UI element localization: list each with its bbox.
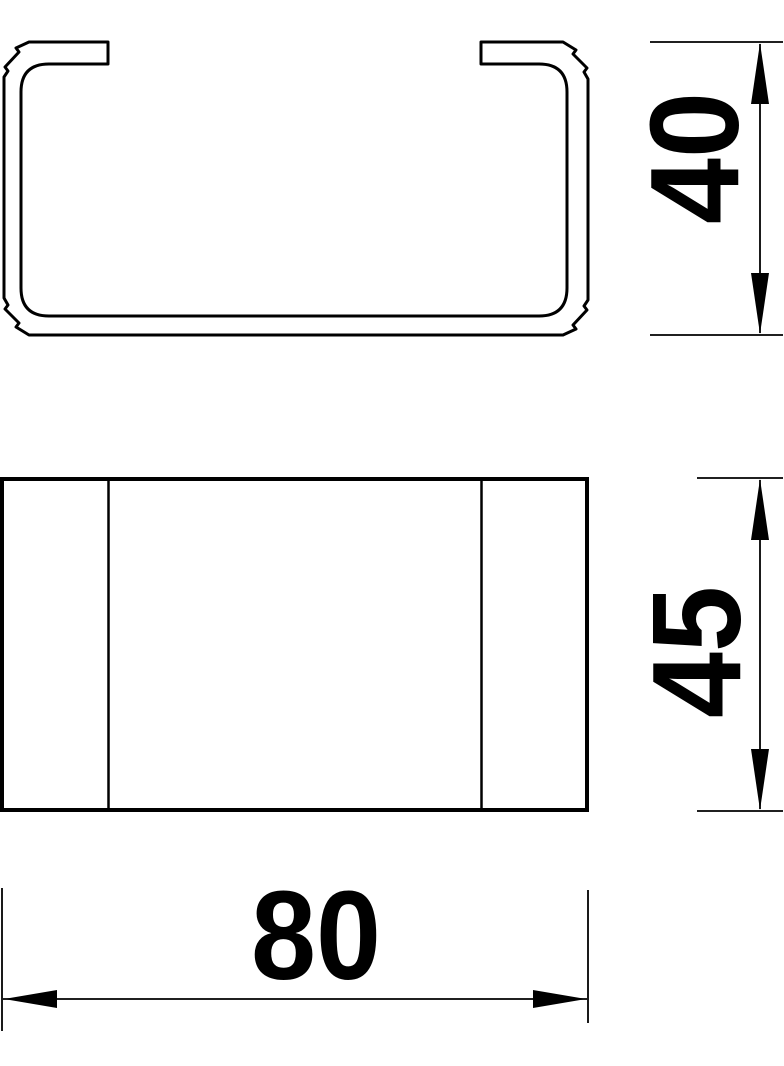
arrowhead-down-icon: [751, 273, 769, 334]
c-profile-outline: [4, 42, 588, 335]
dimension-height-40: 40: [624, 42, 783, 335]
arrowhead-down-icon: [751, 749, 769, 810]
front-view-c-profile: [4, 42, 588, 335]
technical-drawing-canvas: 40 45 80: [0, 0, 784, 1066]
top-view: [2, 479, 587, 810]
dimension-depth-45: 45: [626, 478, 783, 811]
dimension-width-80: 80: [2, 865, 588, 1031]
arrowhead-left-icon: [4, 990, 57, 1008]
top-view-body: [2, 479, 587, 810]
dimension-value-depth: 45: [626, 586, 767, 718]
dimension-drawing: 40 45 80: [0, 0, 784, 1066]
arrowhead-right-icon: [533, 990, 586, 1008]
dimension-value-height: 40: [624, 92, 765, 224]
arrowhead-up-icon: [751, 479, 769, 540]
dimension-value-width: 80: [251, 865, 381, 1006]
